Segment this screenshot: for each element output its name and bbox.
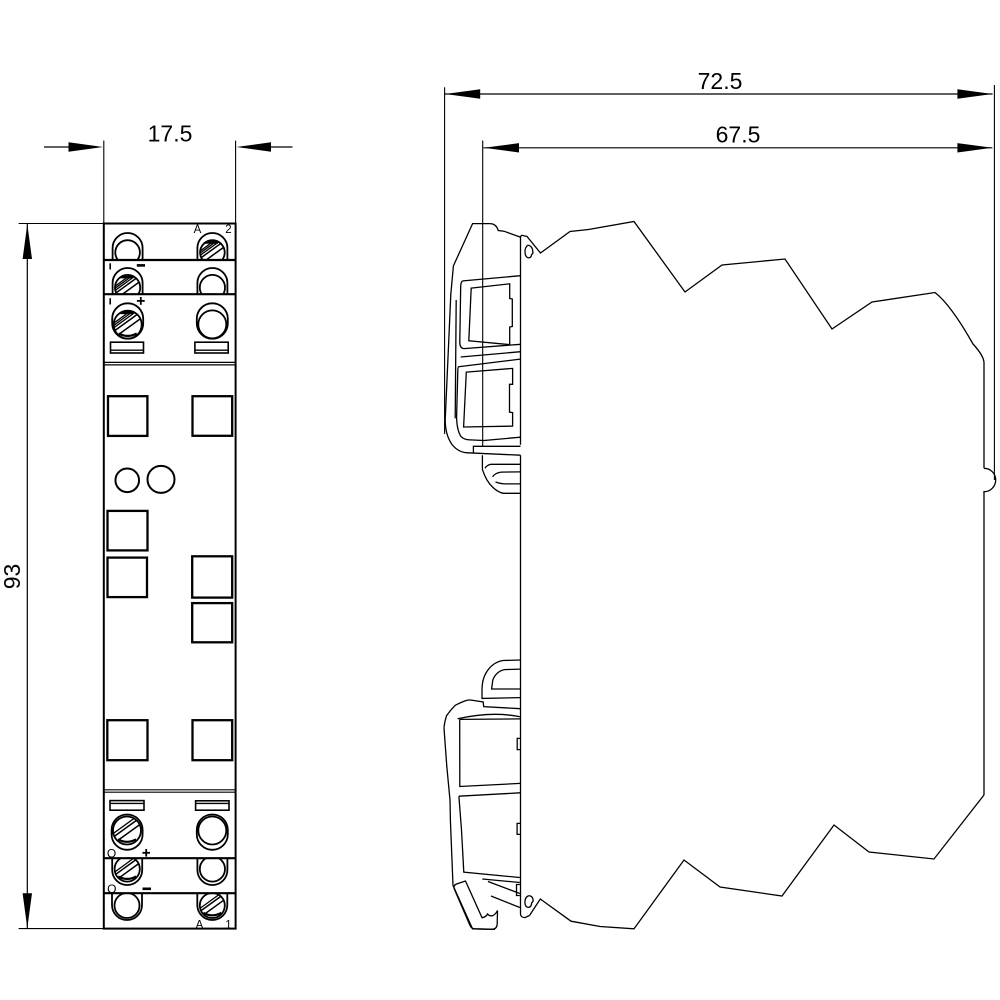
svg-text:2: 2 [225, 224, 231, 236]
svg-text:A: A [196, 919, 204, 931]
svg-text:67.5: 67.5 [716, 121, 761, 147]
svg-text:1: 1 [225, 919, 231, 931]
svg-text:O: O [107, 846, 116, 860]
svg-text:72.5: 72.5 [698, 68, 743, 94]
svg-text:17.5: 17.5 [148, 120, 193, 146]
svg-text:93: 93 [0, 564, 25, 590]
svg-text:A: A [194, 224, 202, 236]
